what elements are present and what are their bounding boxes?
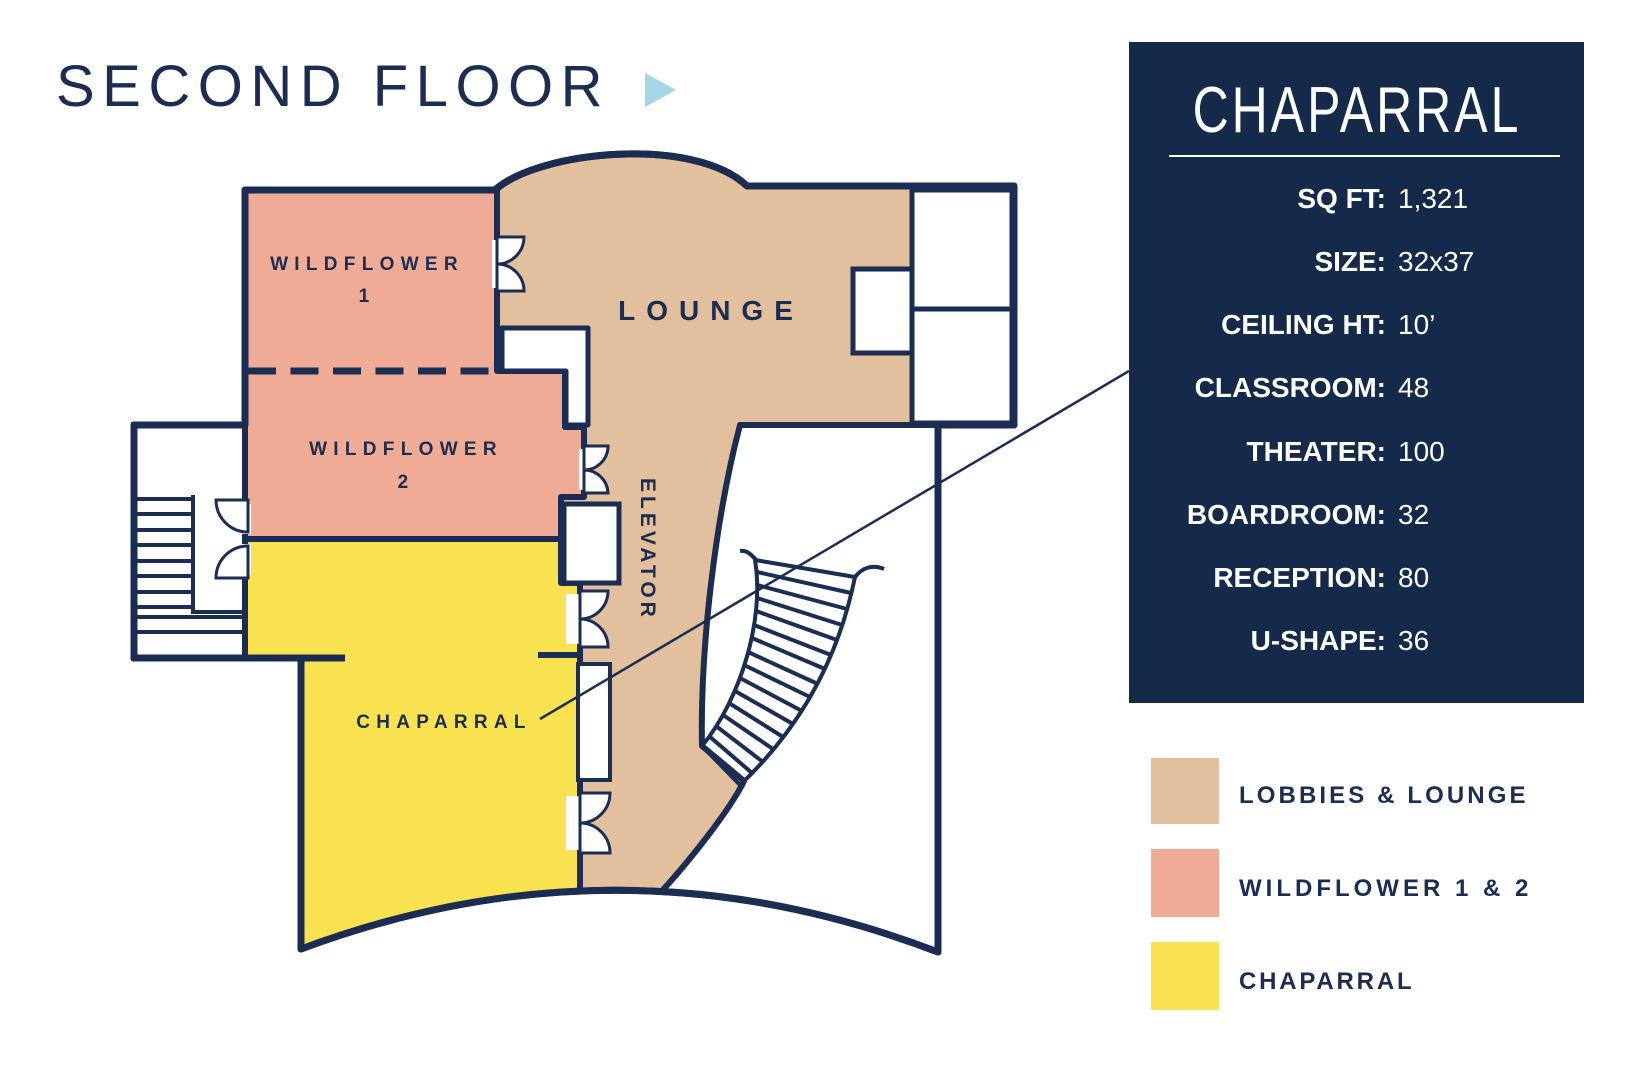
svg-text:1: 1 [359, 286, 376, 307]
svg-text:LOUNGE: LOUNGE [618, 295, 804, 326]
svg-text:36: 36 [1398, 625, 1429, 656]
svg-text:CHAPARRAL: CHAPARRAL [1193, 75, 1522, 147]
svg-text:CHAPARRAL: CHAPARRAL [1239, 968, 1414, 995]
svg-text:10’: 10’ [1398, 309, 1435, 340]
svg-text:U-SHAPE:: U-SHAPE: [1251, 625, 1386, 656]
svg-text:2: 2 [398, 472, 415, 493]
svg-text:SQ FT:: SQ FT: [1297, 183, 1386, 214]
svg-text:SIZE:: SIZE: [1314, 246, 1386, 277]
svg-text:BOARDROOM:: BOARDROOM: [1187, 499, 1386, 530]
svg-text:32: 32 [1398, 499, 1429, 530]
svg-text:ELEVATOR: ELEVATOR [636, 478, 659, 621]
svg-text:80: 80 [1398, 562, 1429, 593]
svg-text:CEILING HT:: CEILING HT: [1221, 309, 1386, 340]
svg-text:CLASSROOM:: CLASSROOM: [1195, 372, 1386, 403]
svg-text:1,321: 1,321 [1398, 183, 1468, 214]
svg-text:32x37: 32x37 [1398, 246, 1474, 277]
svg-text:WILDFLOWER: WILDFLOWER [309, 439, 503, 460]
svg-text:SECOND FLOOR: SECOND FLOOR [56, 54, 610, 119]
svg-text:WILDFLOWER: WILDFLOWER [270, 254, 464, 275]
svg-text:CHAPARRAL: CHAPARRAL [356, 712, 532, 733]
svg-text:RECEPTION:: RECEPTION: [1213, 562, 1386, 593]
svg-text:48: 48 [1398, 372, 1429, 403]
svg-text:LOBBIES & LOUNGE: LOBBIES & LOUNGE [1239, 782, 1529, 809]
svg-text:THEATER:: THEATER: [1247, 436, 1386, 467]
svg-text:WILDFLOWER 1 & 2: WILDFLOWER 1 & 2 [1239, 875, 1532, 902]
svg-text:100: 100 [1398, 436, 1445, 467]
